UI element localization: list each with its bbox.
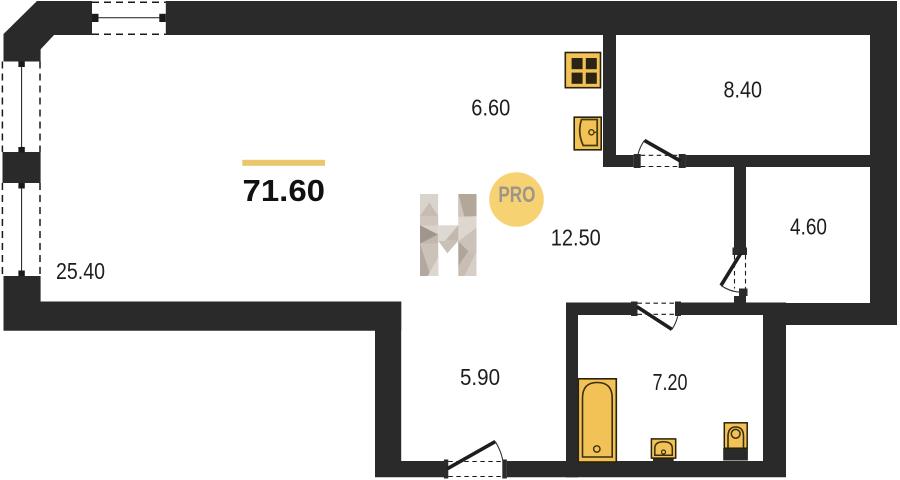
svg-text:25.40: 25.40 <box>56 258 105 284</box>
svg-text:71.60: 71.60 <box>243 173 326 208</box>
svg-text:7.20: 7.20 <box>653 369 688 395</box>
svg-text:PRO: PRO <box>498 182 535 207</box>
svg-text:5.90: 5.90 <box>460 364 500 390</box>
svg-text:12.50: 12.50 <box>551 225 601 251</box>
svg-text:4.60: 4.60 <box>790 214 827 240</box>
svg-text:6.60: 6.60 <box>471 95 510 121</box>
svg-text:8.40: 8.40 <box>724 77 763 103</box>
